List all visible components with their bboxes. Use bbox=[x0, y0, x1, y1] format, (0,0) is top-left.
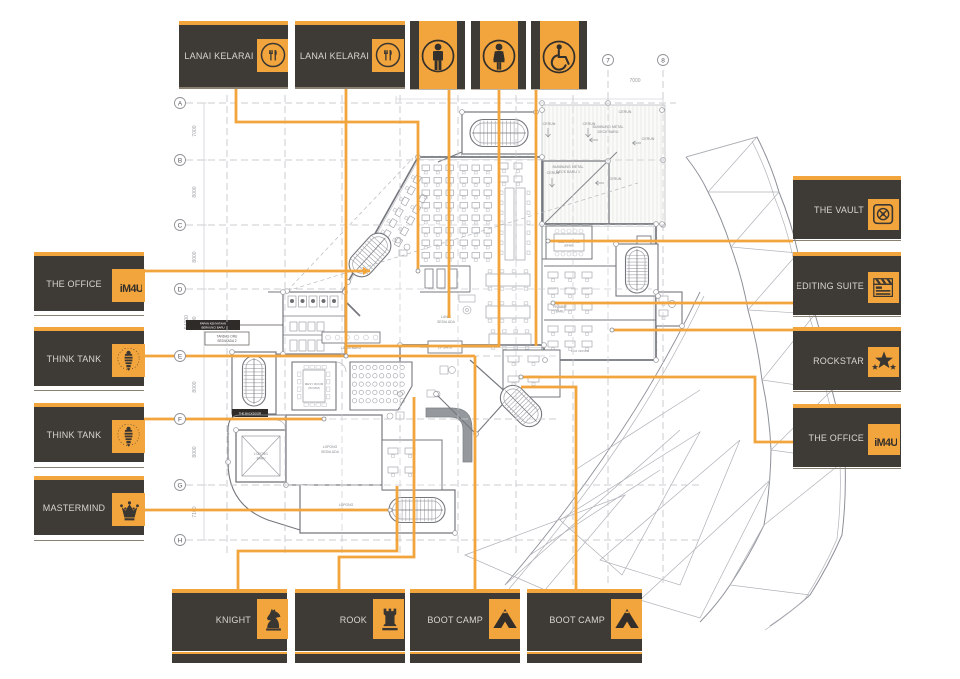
svg-text:8000: 8000 bbox=[192, 446, 198, 457]
svg-text:8000: 8000 bbox=[192, 251, 198, 262]
svg-text:BUMBUNG METAL: BUMBUNG METAL bbox=[552, 165, 583, 169]
svg-text:CERUN: CERUN bbox=[543, 122, 556, 126]
svg-text:E: E bbox=[178, 353, 183, 360]
svg-text:(BPMB): (BPMB) bbox=[564, 243, 574, 247]
svg-text:DECK BARU 1: DECK BARU 1 bbox=[556, 170, 580, 174]
svg-text:LOJI OFFICE: LOJI OFFICE bbox=[571, 349, 589, 353]
svg-text:(IM RIM): (IM RIM) bbox=[308, 386, 320, 390]
svg-text:7000: 7000 bbox=[192, 125, 198, 136]
svg-text:8: 8 bbox=[661, 57, 665, 64]
svg-text:8000: 8000 bbox=[192, 186, 198, 197]
svg-text:7000: 7000 bbox=[629, 78, 640, 84]
svg-text:C: C bbox=[178, 222, 183, 229]
svg-text:D: D bbox=[178, 286, 183, 293]
svg-text:A: A bbox=[178, 100, 183, 107]
svg-text:H: H bbox=[178, 537, 183, 544]
svg-text:CERUN: CERUN bbox=[609, 177, 622, 181]
svg-text:8000: 8000 bbox=[192, 381, 198, 392]
svg-text:iM4U: iM4U bbox=[119, 283, 141, 295]
svg-text:7: 7 bbox=[606, 57, 610, 64]
svg-text:G: G bbox=[177, 482, 182, 489]
svg-text:SEDIA ADA: SEDIA ADA bbox=[321, 450, 339, 454]
svg-text:SEDIA ADA: SEDIA ADA bbox=[437, 320, 455, 324]
svg-text:F: F bbox=[178, 416, 182, 423]
svg-text:LOPONG: LOPONG bbox=[339, 503, 354, 507]
svg-text:LOPONG: LOPONG bbox=[254, 452, 268, 456]
svg-text:7100: 7100 bbox=[192, 506, 198, 517]
svg-text:PEJABAT: PEJABAT bbox=[553, 305, 567, 309]
svg-text:B: B bbox=[178, 157, 182, 164]
svg-text:LOPONG: LOPONG bbox=[323, 445, 338, 449]
svg-text:CERUN: CERUN bbox=[642, 137, 655, 141]
svg-text:BARU: BARU bbox=[257, 457, 267, 461]
svg-text:iM4U: iM4U bbox=[874, 437, 897, 449]
svg-text:BARU: BARU bbox=[556, 309, 566, 313]
svg-text:CERUN: CERUN bbox=[619, 110, 632, 114]
svg-text:BERKUNCI BARU: BERKUNCI BARU bbox=[201, 325, 224, 329]
